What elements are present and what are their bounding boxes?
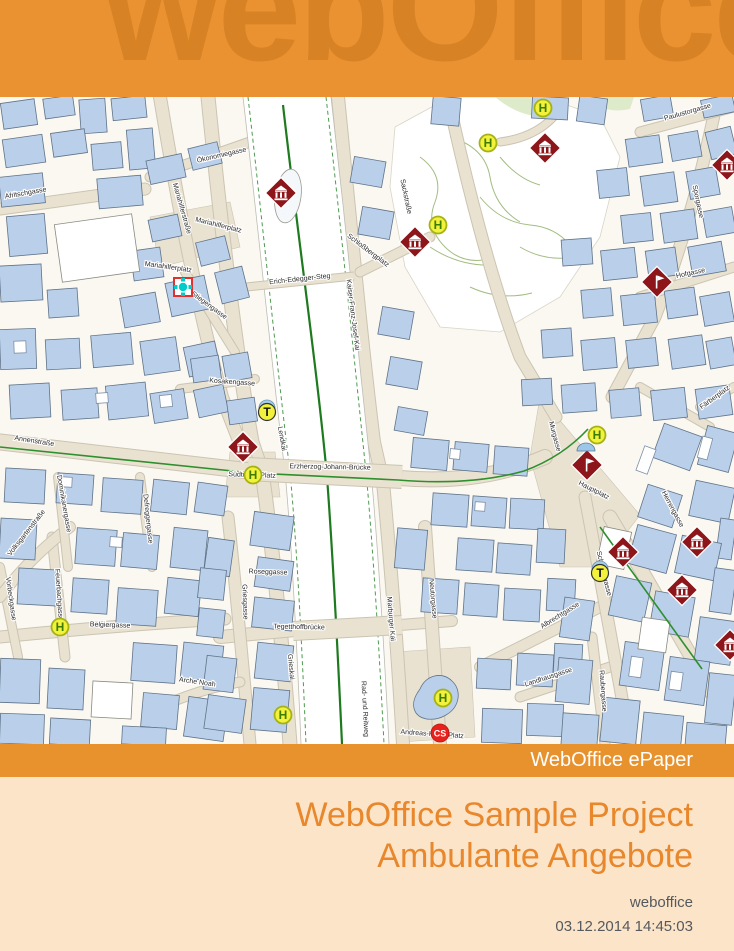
selected-feature-marker-icon xyxy=(174,278,192,296)
svg-text:H: H xyxy=(439,691,448,705)
svg-text:T: T xyxy=(596,566,604,580)
building xyxy=(140,337,180,376)
report-title-line1: WebOffice Sample Project xyxy=(0,795,693,836)
building xyxy=(204,695,246,734)
building xyxy=(9,383,51,419)
building xyxy=(668,131,702,162)
building xyxy=(664,287,698,319)
report-title-line2: Ambulante Angebote xyxy=(0,836,693,877)
building xyxy=(456,538,494,572)
header: webOffice xyxy=(0,0,734,97)
building xyxy=(431,493,469,527)
building xyxy=(0,99,37,129)
building xyxy=(105,382,148,420)
transit-stop-icon: H xyxy=(430,217,447,234)
building xyxy=(702,207,734,238)
svg-text:H: H xyxy=(484,136,493,150)
building xyxy=(496,543,532,575)
building xyxy=(0,264,43,302)
building xyxy=(476,658,512,690)
courtyard xyxy=(159,394,172,407)
building xyxy=(198,568,227,601)
transit-stop-icon: H xyxy=(275,707,292,724)
building xyxy=(91,332,134,367)
building xyxy=(116,588,158,627)
building xyxy=(411,437,449,470)
building xyxy=(222,352,252,382)
building xyxy=(2,134,46,167)
public-building xyxy=(638,617,670,653)
building xyxy=(601,247,638,280)
svg-text:H: H xyxy=(434,218,443,232)
building xyxy=(164,577,202,616)
building xyxy=(541,328,573,358)
building xyxy=(471,496,507,528)
building xyxy=(6,213,47,256)
building xyxy=(17,568,59,606)
building xyxy=(621,292,658,325)
building xyxy=(481,708,522,743)
building xyxy=(561,383,597,413)
transit-stop-icon: H xyxy=(245,467,262,484)
transit-stop-icon: H xyxy=(589,427,606,444)
building xyxy=(421,578,459,614)
building xyxy=(555,658,593,705)
header-watermark: webOffice xyxy=(104,0,734,95)
building xyxy=(170,527,208,570)
svg-text:H: H xyxy=(56,620,65,634)
building xyxy=(111,97,147,121)
building xyxy=(193,384,228,418)
svg-text:H: H xyxy=(593,428,602,442)
building xyxy=(61,388,99,420)
building xyxy=(0,658,41,703)
building xyxy=(706,337,734,369)
building xyxy=(660,209,698,243)
transit-stop-icon: H xyxy=(480,135,497,152)
building xyxy=(194,482,228,516)
street xyxy=(220,630,295,637)
building xyxy=(686,167,720,200)
building xyxy=(0,713,45,744)
transit-stop-icon: H xyxy=(535,100,552,117)
building xyxy=(350,156,386,187)
street-label: Belgiergasse xyxy=(90,621,131,629)
building xyxy=(689,480,734,524)
footer: WebOffice Sample Project Ambulante Angeb… xyxy=(0,777,734,951)
building xyxy=(150,479,189,515)
map-container: AfritschgasseÖkonomiegasseMariahilferstr… xyxy=(0,97,734,744)
courtyard xyxy=(669,671,683,690)
report-author: weboffice xyxy=(0,891,693,915)
building xyxy=(609,388,641,419)
public-building xyxy=(91,681,133,719)
building xyxy=(597,168,630,199)
courtyard xyxy=(96,393,109,404)
building xyxy=(120,292,161,328)
building xyxy=(49,718,90,744)
svg-text:T: T xyxy=(263,405,271,419)
street-label: Tegetthoffbrücke xyxy=(273,624,325,632)
report-timestamp: 03.12.2014 14:45:03 xyxy=(0,915,693,939)
street-label: Griesgasse xyxy=(240,584,248,620)
courtyard xyxy=(14,341,26,353)
building xyxy=(43,97,75,119)
building xyxy=(651,387,688,420)
carsharing-icon: CS xyxy=(431,724,449,742)
transit-stop-icon: H xyxy=(52,619,69,636)
building xyxy=(561,713,599,744)
svg-text:H: H xyxy=(539,101,548,115)
building xyxy=(608,576,652,623)
building xyxy=(536,528,566,563)
building xyxy=(581,338,617,371)
taxi-stand-icon: T xyxy=(592,561,609,582)
building xyxy=(386,356,422,389)
building xyxy=(526,703,563,736)
epaper-banner: WebOffice ePaper xyxy=(0,744,734,777)
building xyxy=(621,213,654,244)
transit-stop-icon: H xyxy=(435,690,452,707)
building xyxy=(431,97,461,126)
building xyxy=(640,712,684,744)
building xyxy=(91,142,123,171)
street-label: Erzherzog-Johann-Brücke xyxy=(289,463,371,471)
city-map: AfritschgasseÖkonomiegasseMariahilferstr… xyxy=(0,97,734,744)
building xyxy=(358,206,394,239)
svg-text:H: H xyxy=(279,708,288,722)
epaper-banner-label: WebOffice ePaper xyxy=(530,749,734,772)
building xyxy=(226,397,257,425)
taxi-stand-icon: T xyxy=(259,400,276,421)
building xyxy=(47,288,79,318)
courtyard xyxy=(475,502,486,512)
building xyxy=(463,583,499,617)
building xyxy=(250,511,294,550)
building xyxy=(521,378,552,406)
building xyxy=(668,335,706,369)
courtyard xyxy=(629,656,644,677)
building xyxy=(97,175,143,209)
courtyard xyxy=(110,537,123,548)
building xyxy=(503,588,541,622)
building xyxy=(101,478,143,515)
building xyxy=(45,338,81,370)
svg-text:H: H xyxy=(249,468,258,482)
street-label: Roseggasse xyxy=(248,568,287,576)
building xyxy=(640,172,678,206)
building xyxy=(394,528,427,570)
building xyxy=(581,288,613,319)
svg-text:CS: CS xyxy=(434,729,447,739)
building xyxy=(704,673,734,726)
building xyxy=(394,407,428,436)
building xyxy=(685,722,727,744)
courtyard xyxy=(450,449,461,460)
public-building xyxy=(54,214,139,282)
building xyxy=(576,97,607,125)
building xyxy=(71,578,109,614)
building xyxy=(561,238,593,266)
building xyxy=(626,338,659,369)
epaper-page: webOffice AfritschgasseÖkonomiegasseMari… xyxy=(0,0,734,951)
building xyxy=(131,643,178,684)
building xyxy=(378,306,414,339)
building xyxy=(4,468,46,504)
building xyxy=(47,668,85,710)
building xyxy=(50,129,87,157)
building xyxy=(122,726,167,744)
building xyxy=(625,135,663,167)
building xyxy=(197,608,226,639)
building xyxy=(141,692,180,729)
building xyxy=(509,498,545,530)
building xyxy=(700,292,734,327)
